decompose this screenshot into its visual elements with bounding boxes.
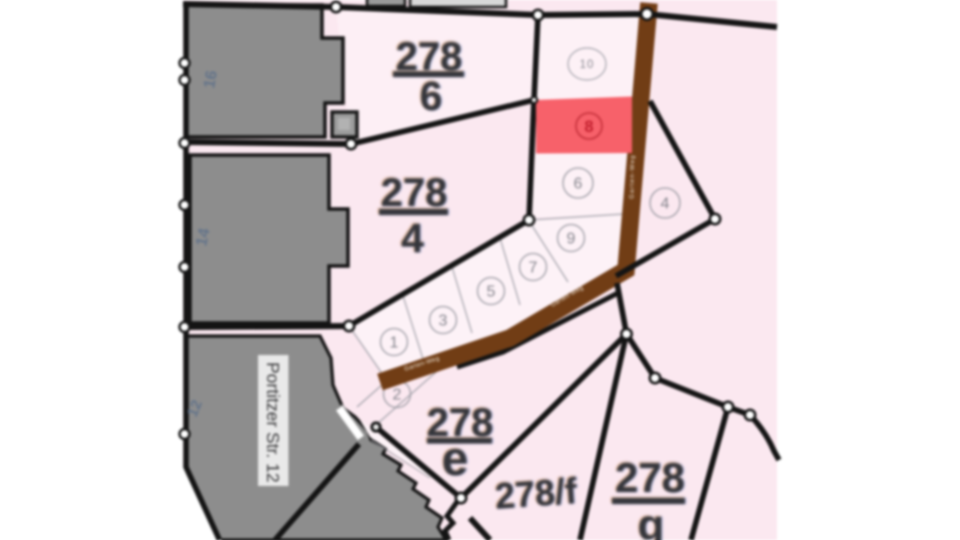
svg-text:Garten-Weg: Garten-Weg bbox=[629, 154, 637, 199]
svg-text:10: 10 bbox=[580, 59, 595, 71]
svg-text:6: 6 bbox=[420, 73, 443, 119]
svg-text:278: 278 bbox=[381, 171, 448, 215]
svg-text:g: g bbox=[638, 501, 665, 540]
svg-text:5: 5 bbox=[487, 284, 496, 301]
svg-text:7: 7 bbox=[529, 260, 538, 277]
svg-text:14: 14 bbox=[193, 227, 213, 248]
svg-text:9: 9 bbox=[567, 231, 576, 248]
svg-text:16: 16 bbox=[201, 69, 221, 90]
svg-text:6: 6 bbox=[574, 176, 583, 193]
svg-text:278: 278 bbox=[615, 454, 685, 501]
svg-text:2: 2 bbox=[393, 387, 402, 404]
svg-text:3: 3 bbox=[439, 313, 448, 330]
svg-text:Portitzer Str. 12: Portitzer Str. 12 bbox=[263, 362, 283, 483]
svg-text:278/f: 278/f bbox=[494, 470, 580, 517]
svg-text:4: 4 bbox=[401, 215, 424, 261]
svg-text:4: 4 bbox=[661, 196, 670, 213]
svg-text:e: e bbox=[442, 433, 469, 486]
svg-text:1: 1 bbox=[390, 335, 399, 352]
svg-text:8: 8 bbox=[584, 118, 593, 136]
